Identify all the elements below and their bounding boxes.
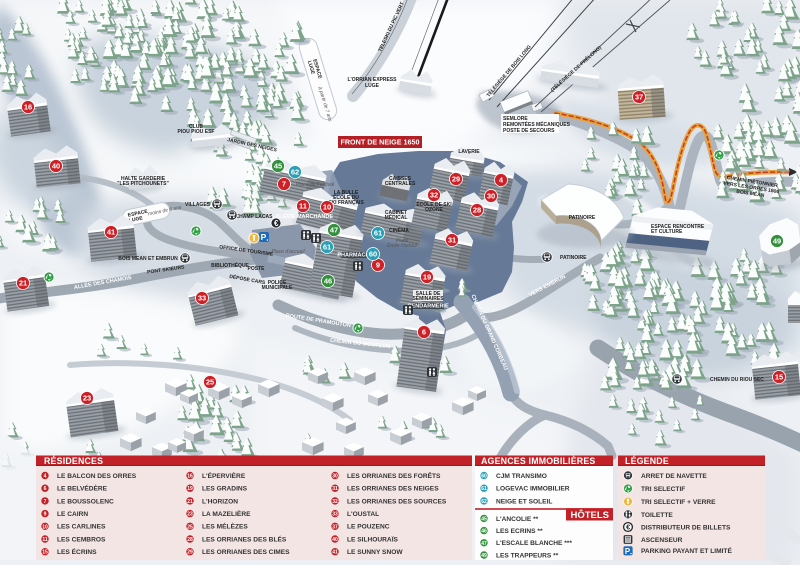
- svg-text:TRI SELECTIF: TRI SELECTIF: [641, 486, 685, 493]
- svg-text:6: 6: [44, 486, 47, 492]
- svg-text:47: 47: [330, 226, 338, 235]
- svg-text:NEIGE ET SOLEIL: NEIGE ET SOLEIL: [496, 498, 552, 505]
- svg-text:Émile Hodoul: Émile Hodoul: [387, 242, 418, 249]
- svg-text:9: 9: [376, 261, 380, 270]
- svg-text:11: 11: [299, 202, 307, 211]
- svg-text:15: 15: [42, 550, 48, 556]
- svg-text:LE SUNNY SNOW: LE SUNNY SNOW: [347, 549, 403, 556]
- svg-text:45: 45: [274, 162, 282, 171]
- svg-text:HÔTELS: HÔTELS: [570, 509, 609, 521]
- svg-text:33: 33: [198, 294, 206, 303]
- svg-text:LES CEMBROS: LES CEMBROS: [57, 536, 106, 543]
- svg-text:REMONTÉES MÉCANIQUES: REMONTÉES MÉCANIQUES: [503, 120, 571, 128]
- svg-text:CHEMIN DU RIOU SEC: CHEMIN DU RIOU SEC: [710, 377, 764, 383]
- svg-text:Place d'accueil: Place d'accueil: [271, 249, 305, 255]
- svg-text:16: 16: [187, 474, 193, 480]
- svg-text:47: 47: [481, 541, 487, 547]
- svg-text:30: 30: [487, 192, 495, 201]
- svg-text:16: 16: [24, 103, 32, 112]
- svg-text:PATINOIRE: PATINOIRE: [569, 215, 596, 221]
- svg-text:LE SILHOURAÏS: LE SILHOURAÏS: [347, 535, 399, 543]
- svg-text:23: 23: [83, 394, 91, 403]
- svg-text:60: 60: [369, 250, 377, 259]
- svg-text:62: 62: [481, 499, 487, 505]
- svg-text:BOIS MEAN ET EMBRUN: BOIS MEAN ET EMBRUN: [118, 256, 178, 262]
- svg-text:CENTRALES: CENTRALES: [385, 181, 416, 187]
- svg-text:32: 32: [430, 191, 438, 200]
- svg-text:ET CULTURE: ET CULTURE: [651, 229, 683, 235]
- svg-text:LES ORRIANES DES BLÉS: LES ORRIANES DES BLÉS: [202, 534, 287, 543]
- svg-text:RÉSIDENCES: RÉSIDENCES: [44, 456, 103, 466]
- svg-text:SÉMINAIRES: SÉMINAIRES: [412, 294, 444, 302]
- svg-text:BIBLIOTHÈQUE: BIBLIOTHÈQUE: [211, 261, 249, 269]
- svg-text:LES GRADINS: LES GRADINS: [202, 486, 248, 493]
- svg-text:LAVERIE: LAVERIE: [458, 149, 480, 155]
- svg-text:PHARMACIE: PHARMACIE: [337, 253, 371, 259]
- svg-text:P: P: [625, 547, 630, 556]
- svg-text:POSTE DE SECOURS: POSTE DE SECOURS: [503, 128, 555, 134]
- svg-text:15: 15: [775, 373, 783, 382]
- svg-text:DISTRIBUTEUR DE BILLETS: DISTRIBUTEUR DE BILLETS: [641, 524, 731, 531]
- svg-text:28: 28: [187, 537, 193, 543]
- svg-text:CHAMP LACAS: CHAMP LACAS: [236, 214, 274, 220]
- svg-text:TOILETTE: TOILETTE: [641, 512, 673, 519]
- svg-text:LES MÉLÈZES: LES MÉLÈZES: [202, 522, 248, 531]
- svg-text:49: 49: [773, 237, 781, 246]
- svg-text:49: 49: [481, 553, 487, 559]
- svg-text:9: 9: [44, 512, 47, 518]
- svg-text:€: €: [274, 219, 279, 228]
- svg-text:33: 33: [332, 512, 338, 518]
- svg-text:29: 29: [187, 550, 193, 556]
- svg-text:61: 61: [323, 243, 331, 252]
- svg-text:TRI SELECTIF + VERRE: TRI SELECTIF + VERRE: [641, 499, 716, 506]
- svg-text:POSTE: POSTE: [248, 266, 266, 272]
- svg-text:60: 60: [481, 474, 487, 480]
- svg-text:LES TRAPPEURS **: LES TRAPPEURS **: [496, 552, 559, 559]
- svg-text:LE POUZENC: LE POUZENC: [347, 524, 390, 531]
- svg-text:SKI FRANÇAIS: SKI FRANÇAIS: [328, 200, 364, 206]
- svg-text:61: 61: [481, 486, 487, 492]
- svg-text:LES CARLINES: LES CARLINES: [57, 524, 106, 531]
- svg-text:21: 21: [19, 279, 27, 288]
- svg-text:LE BOUSSOLENC: LE BOUSSOLENC: [57, 498, 114, 505]
- svg-text:AGENCES IMMOBILIÈRES: AGENCES IMMOBILIÈRES: [481, 456, 595, 466]
- svg-text:GALERIE MARCHANDE: GALERIE MARCHANDE: [271, 214, 333, 220]
- svg-text:CJM TRANSIMO: CJM TRANSIMO: [496, 473, 547, 480]
- svg-text:31: 31: [332, 486, 338, 492]
- svg-text:45: 45: [481, 516, 487, 522]
- svg-text:28: 28: [473, 206, 481, 215]
- svg-text:25: 25: [206, 378, 214, 387]
- svg-text:P: P: [261, 232, 267, 242]
- svg-text:LA MAZELIÈRE: LA MAZELIÈRE: [202, 509, 251, 518]
- svg-text:LE CAIRN: LE CAIRN: [57, 511, 88, 518]
- svg-text:41: 41: [332, 550, 338, 556]
- svg-text:6: 6: [422, 328, 426, 337]
- svg-text:7: 7: [44, 499, 47, 505]
- svg-text:PATINOIRE: PATINOIRE: [560, 255, 587, 261]
- svg-text:19: 19: [423, 273, 431, 282]
- svg-text:CINÉMA: CINÉMA: [389, 226, 409, 234]
- svg-text:Place du Festival: Place du Festival: [296, 182, 335, 188]
- svg-text:LES ORRIANES DES NEIGES: LES ORRIANES DES NEIGES: [347, 486, 439, 493]
- svg-text:LE BALCON DES ORRES: LE BALCON DES ORRES: [57, 473, 137, 480]
- svg-text:ARRET DE NAVETTE: ARRET DE NAVETTE: [641, 473, 707, 480]
- svg-text:29: 29: [452, 175, 460, 184]
- svg-text:LES ORRIANES DES FORÊTS: LES ORRIANES DES FORÊTS: [347, 471, 441, 480]
- svg-text:40: 40: [52, 162, 60, 171]
- svg-text:19: 19: [187, 486, 193, 492]
- svg-text:L'ÉPERVIÈRE: L'ÉPERVIÈRE: [202, 471, 246, 480]
- svg-text:FRONT DE NEIGE 1650: FRONT DE NEIGE 1650: [340, 138, 419, 147]
- svg-text:PARKING PAYANT ET LIMITÉ: PARKING PAYANT ET LIMITÉ: [641, 546, 732, 555]
- svg-text:VILLAGES: VILLAGES: [185, 202, 211, 208]
- svg-text:ASCENSEUR: ASCENSEUR: [641, 537, 683, 544]
- svg-text:10: 10: [42, 524, 48, 530]
- svg-text:L'ANCOLIE **: L'ANCOLIE **: [496, 516, 539, 523]
- svg-text:23: 23: [187, 512, 193, 518]
- svg-text:11: 11: [42, 537, 48, 543]
- svg-text:MÉDICAL: MÉDICAL: [385, 213, 408, 221]
- svg-text:OZONE: OZONE: [425, 207, 443, 213]
- svg-text:L'OUSTAL: L'OUSTAL: [347, 511, 379, 518]
- svg-text:LOGEVAC IMMOBILIER: LOGEVAC IMMOBILIER: [496, 486, 570, 493]
- svg-text:31: 31: [448, 236, 456, 245]
- svg-text:MUNICIPALE: MUNICIPALE: [262, 285, 293, 291]
- svg-text:40: 40: [332, 537, 338, 543]
- svg-text:10: 10: [323, 203, 331, 212]
- svg-text:LES ECRINS **: LES ECRINS **: [496, 528, 543, 535]
- svg-text:25: 25: [187, 524, 193, 530]
- svg-text:46: 46: [324, 277, 332, 286]
- svg-text:GENDARMERIE: GENDARMERIE: [407, 304, 449, 310]
- svg-text:30: 30: [332, 474, 338, 480]
- svg-text:61: 61: [374, 229, 382, 238]
- svg-text:LE BELVÉDÈRE: LE BELVÉDÈRE: [57, 484, 108, 493]
- svg-text:7: 7: [282, 180, 286, 189]
- svg-text:62: 62: [291, 168, 299, 177]
- svg-text:€: €: [626, 523, 630, 532]
- svg-text:"LES PITCHOUNETS": "LES PITCHOUNETS": [117, 181, 169, 187]
- svg-text:32: 32: [332, 499, 338, 505]
- svg-text:37: 37: [332, 524, 338, 530]
- svg-text:LES ORRIANES DES SOURCES: LES ORRIANES DES SOURCES: [347, 498, 447, 505]
- svg-text:L'HORIZON: L'HORIZON: [202, 498, 238, 505]
- svg-text:PIOU PIOU ESF: PIOU PIOU ESF: [178, 129, 215, 135]
- svg-text:LUGE: LUGE: [365, 83, 380, 89]
- svg-text:46: 46: [481, 529, 487, 535]
- svg-text:21: 21: [187, 499, 193, 505]
- svg-text:41: 41: [107, 228, 115, 237]
- svg-text:37: 37: [635, 93, 643, 102]
- svg-text:4: 4: [44, 474, 47, 480]
- svg-text:LES ORRIANES DES CIMES: LES ORRIANES DES CIMES: [202, 549, 290, 556]
- svg-text:LES ÉCRINS: LES ÉCRINS: [57, 547, 97, 556]
- svg-text:L'ESCALE BLANCHE ***: L'ESCALE BLANCHE ***: [496, 540, 572, 547]
- svg-text:LÉGENDE: LÉGENDE: [625, 456, 669, 466]
